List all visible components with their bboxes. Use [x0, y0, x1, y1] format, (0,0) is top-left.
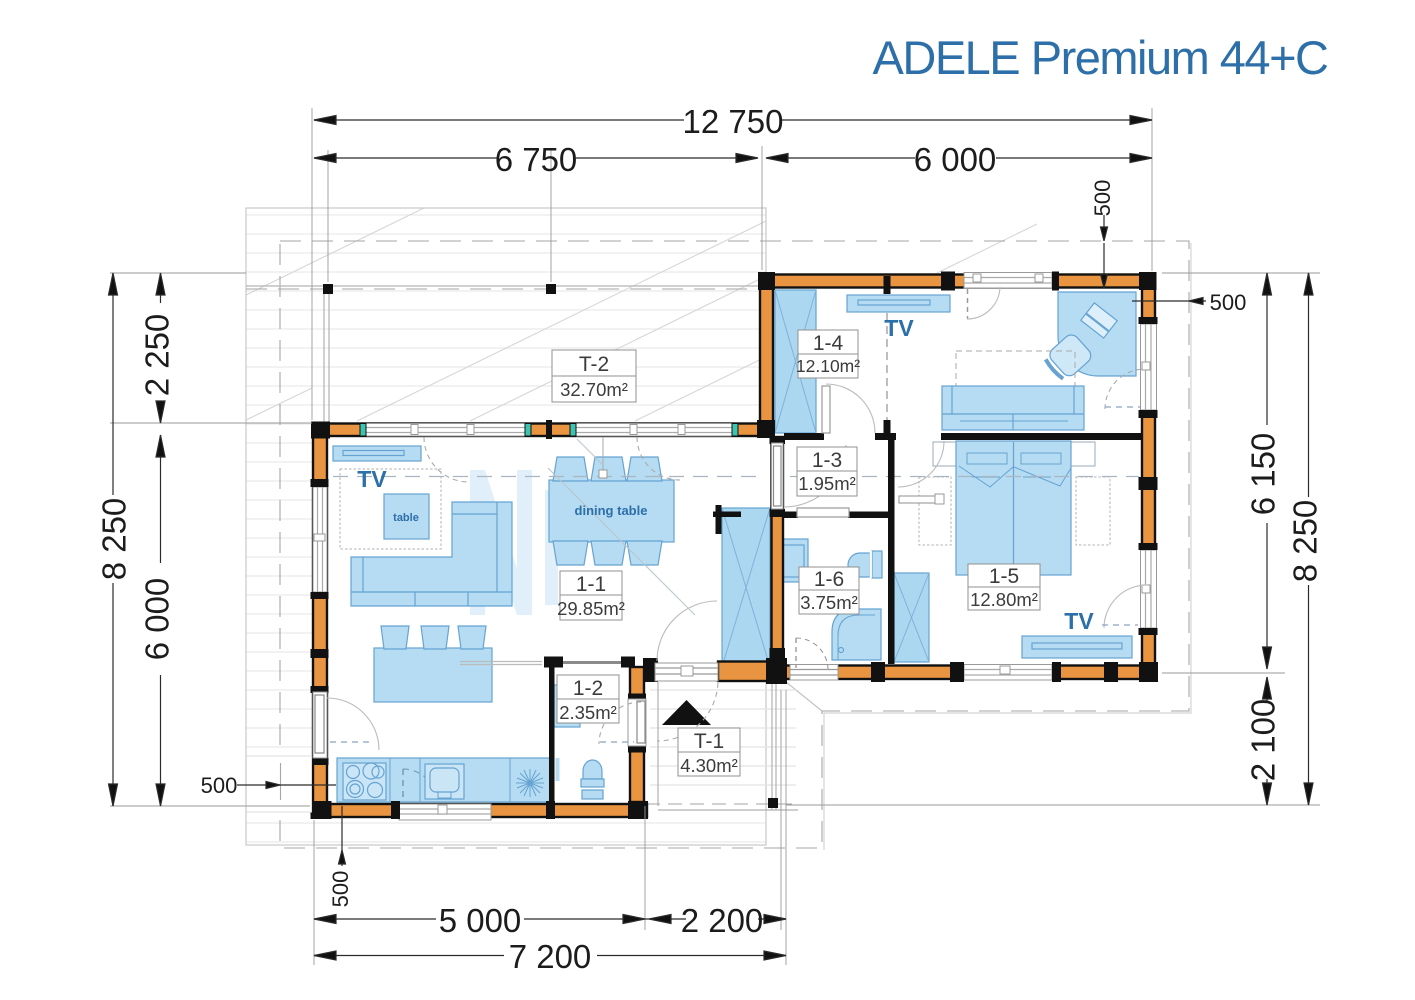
svg-text:6 000: 6 000	[914, 141, 997, 178]
svg-text:ADELE Premium 44+C: ADELE Premium 44+C	[873, 31, 1328, 84]
svg-text:1-6: 1-6	[814, 568, 844, 591]
svg-text:TV: TV	[1064, 608, 1094, 634]
svg-text:1.95m²: 1.95m²	[798, 473, 856, 494]
svg-text:12.80m²: 12.80m²	[970, 589, 1038, 610]
svg-text:T-1: T-1	[694, 730, 724, 753]
svg-text:2.35m²: 2.35m²	[559, 702, 617, 723]
svg-text:12 750: 12 750	[683, 103, 784, 140]
svg-text:500: 500	[328, 871, 353, 908]
svg-text:table: table	[393, 512, 419, 524]
svg-text:dining table: dining table	[575, 503, 648, 518]
svg-text:29.85m²: 29.85m²	[557, 598, 625, 619]
svg-text:500: 500	[1090, 180, 1115, 217]
svg-text:2 200: 2 200	[681, 902, 764, 939]
svg-text:1-4: 1-4	[813, 332, 844, 355]
svg-text:TV: TV	[357, 466, 387, 492]
svg-text:4.30m²: 4.30m²	[680, 755, 738, 776]
svg-text:500: 500	[201, 773, 238, 798]
svg-text:T-2: T-2	[579, 353, 609, 376]
svg-text:3.75m²: 3.75m²	[800, 592, 858, 613]
svg-text:2 250: 2 250	[139, 314, 176, 397]
svg-text:6 750: 6 750	[495, 141, 578, 178]
svg-text:8 250: 8 250	[1287, 500, 1324, 583]
svg-text:1-3: 1-3	[812, 449, 842, 472]
svg-text:12.10m²: 12.10m²	[796, 356, 860, 376]
svg-text:TV: TV	[884, 315, 914, 341]
svg-text:7 200: 7 200	[509, 938, 592, 975]
svg-text:8 250: 8 250	[96, 498, 133, 581]
svg-text:1-5: 1-5	[989, 565, 1019, 588]
svg-text:500: 500	[1210, 290, 1247, 315]
svg-text:5 000: 5 000	[439, 902, 522, 939]
svg-text:6 000: 6 000	[139, 578, 176, 661]
svg-text:2 100: 2 100	[1245, 699, 1282, 782]
svg-text:6 150: 6 150	[1245, 433, 1282, 516]
svg-text:32.70m²: 32.70m²	[560, 379, 628, 400]
svg-text:1-1: 1-1	[576, 573, 606, 596]
svg-text:1-2: 1-2	[573, 677, 603, 700]
